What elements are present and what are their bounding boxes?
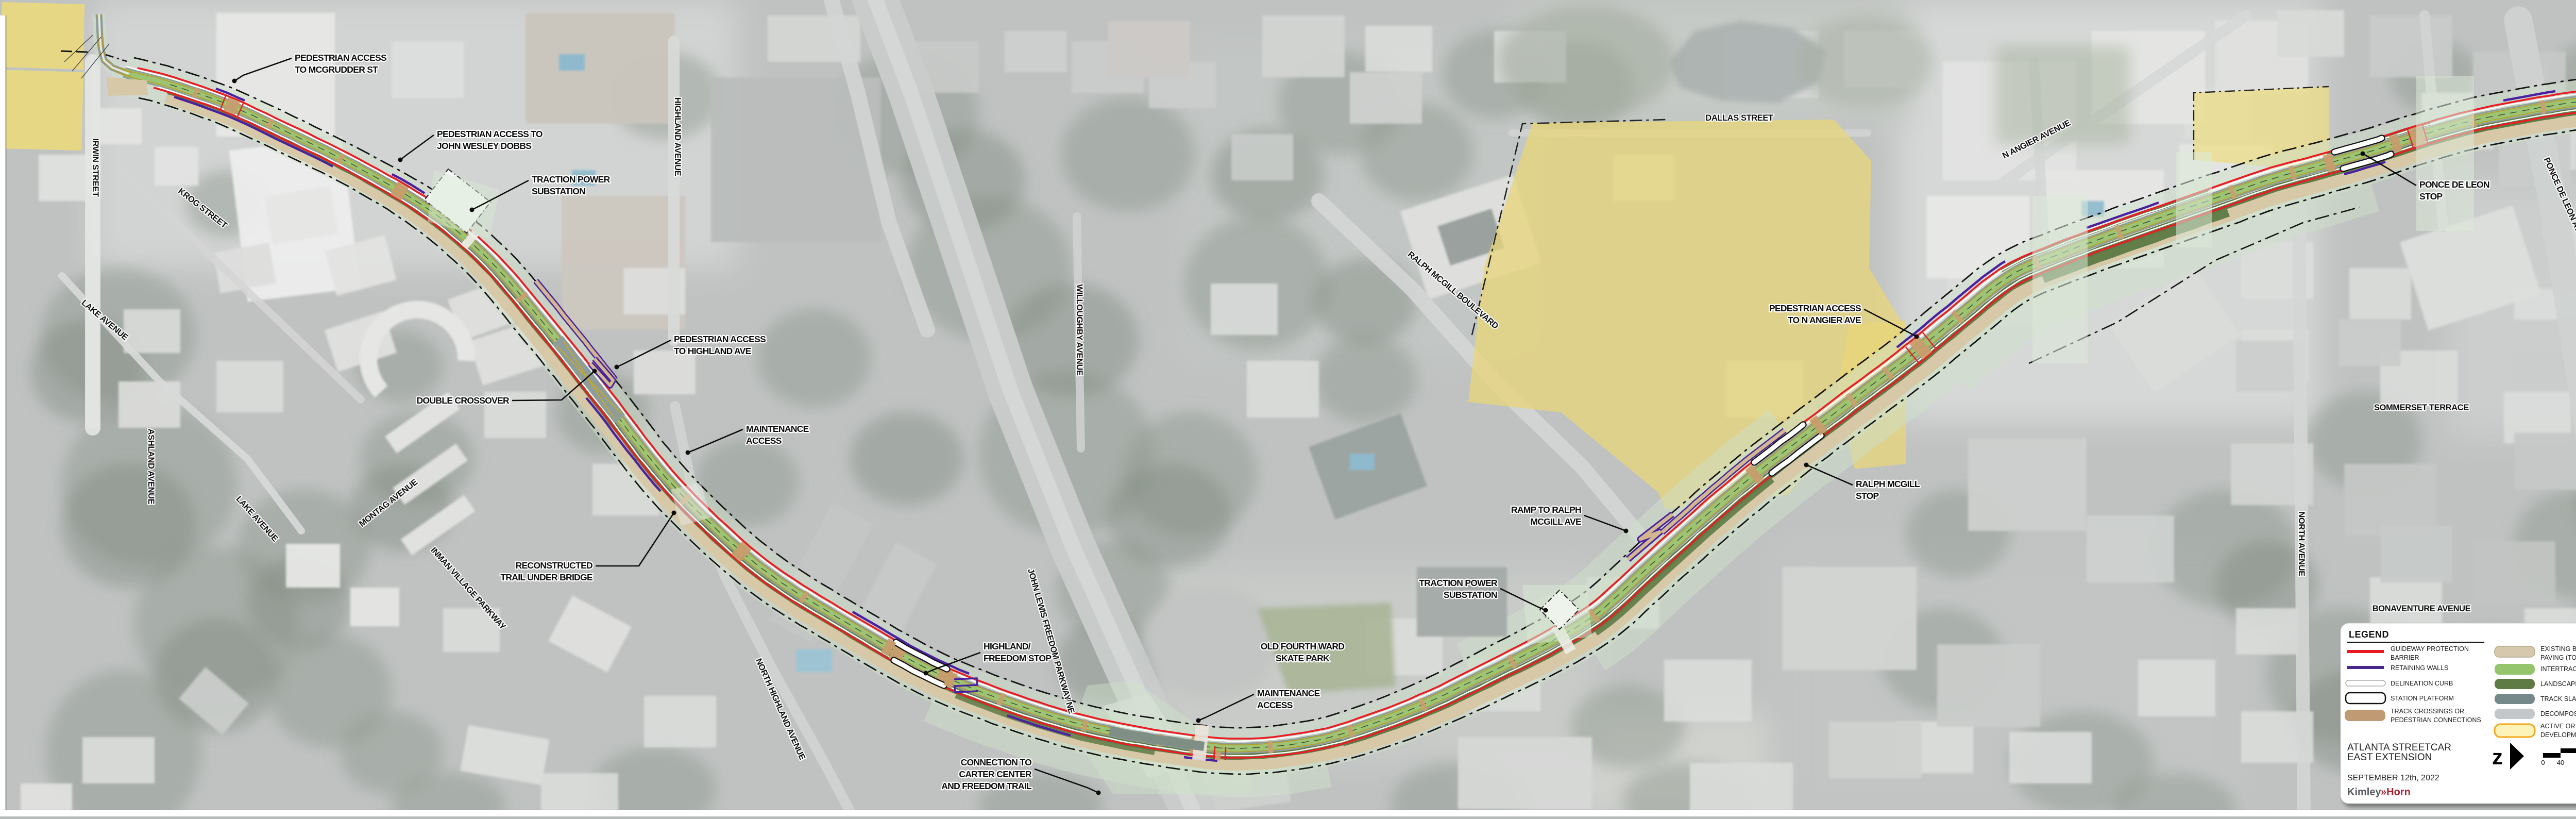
- svg-text:BONAVENTURE AVENUE: BONAVENTURE AVENUE: [2372, 604, 2471, 613]
- svg-text:AND FREEDOM TRAIL: AND FREEDOM TRAIL: [941, 781, 1032, 791]
- svg-text:TRACK CROSSINGS OR: TRACK CROSSINGS OR: [2391, 708, 2464, 715]
- svg-text:ACCESS: ACCESS: [746, 436, 782, 446]
- svg-text:EXISTING BELTLINE: EXISTING BELTLINE: [2540, 645, 2576, 653]
- svg-text:TRACTION POWER: TRACTION POWER: [1419, 578, 1498, 588]
- svg-text:BARRIER: BARRIER: [2391, 654, 2419, 661]
- svg-text:EAST EXTENSION: EAST EXTENSION: [2347, 752, 2432, 763]
- svg-text:0: 0: [2541, 759, 2545, 766]
- svg-text:STOP: STOP: [2419, 191, 2443, 202]
- svg-text:SEPTEMBER 12th, 2022: SEPTEMBER 12th, 2022: [2347, 774, 2439, 782]
- svg-text:CARTER CENTER: CARTER CENTER: [959, 769, 1032, 779]
- svg-text:JOHN WESLEY DOBBS: JOHN WESLEY DOBBS: [437, 141, 531, 151]
- svg-text:OLD FOURTH WARD: OLD FOURTH WARD: [1261, 641, 1345, 651]
- svg-text:PEDESTRIAN ACCESS TO: PEDESTRIAN ACCESS TO: [437, 129, 543, 139]
- svg-text:PEDESTRIAN ACCESS: PEDESTRIAN ACCESS: [295, 53, 386, 63]
- svg-text:ACTIVE OR PLANNED: ACTIVE OR PLANNED: [2540, 723, 2576, 730]
- svg-text:IRWIN STREET: IRWIN STREET: [91, 138, 100, 196]
- svg-text:CONNECTION TO: CONNECTION TO: [961, 757, 1031, 767]
- svg-text:SKATE PARK: SKATE PARK: [1276, 653, 1330, 663]
- svg-text:INTERTRACK GRASS: INTERTRACK GRASS: [2540, 665, 2576, 673]
- svg-text:TRAIL UNDER BRIDGE: TRAIL UNDER BRIDGE: [500, 572, 592, 582]
- svg-text:DECOMPOSED GRANITE: DECOMPOSED GRANITE: [2540, 710, 2576, 717]
- svg-text:DOUBLE CROSSOVER: DOUBLE CROSSOVER: [417, 395, 510, 406]
- svg-text:RECONSTRUCTED: RECONSTRUCTED: [516, 560, 592, 571]
- svg-text:DEVELOPMENT: DEVELOPMENT: [2540, 731, 2576, 739]
- svg-text:LEGEND: LEGEND: [2349, 629, 2389, 640]
- svg-text:DALLAS STREET: DALLAS STREET: [1705, 113, 1773, 123]
- svg-text:SOMMERSET TERRACE: SOMMERSET TERRACE: [2374, 403, 2469, 412]
- svg-text:TRACTION POWER: TRACTION POWER: [532, 174, 611, 185]
- svg-text:PEDESTRIAN ACCESS: PEDESTRIAN ACCESS: [674, 334, 766, 344]
- svg-text:FREEDOM STOP: FREEDOM STOP: [984, 653, 1052, 663]
- svg-text:PEDESTRIAN CONNECTIONS: PEDESTRIAN CONNECTIONS: [2391, 716, 2481, 724]
- svg-text:HIGHLAND AVENUE: HIGHLAND AVENUE: [673, 97, 682, 176]
- svg-text:GUIDEWAY PROTECTION: GUIDEWAY PROTECTION: [2391, 645, 2469, 653]
- svg-text:STATION PLATFORM: STATION PLATFORM: [2391, 695, 2454, 702]
- svg-text:PEDESTRIAN ACCESS: PEDESTRIAN ACCESS: [1769, 303, 1861, 313]
- svg-text:NORTH AVENUE: NORTH AVENUE: [2297, 511, 2306, 576]
- svg-text:ATLANTA STREETCAR: ATLANTA STREETCAR: [2347, 742, 2451, 753]
- svg-text:SUBSTATION: SUBSTATION: [1444, 590, 1497, 600]
- svg-text:RETAINING WALLS: RETAINING WALLS: [2391, 664, 2449, 672]
- svg-text:ASHLAND AVENUE: ASHLAND AVENUE: [146, 429, 156, 505]
- svg-text:Kimley: Kimley: [2347, 787, 2381, 798]
- svg-text:WILLOUGHBY AVENUE: WILLOUGHBY AVENUE: [1075, 284, 1084, 376]
- svg-text:LANDSCAPE AREA: LANDSCAPE AREA: [2540, 680, 2576, 688]
- svg-text:SUBSTATION: SUBSTATION: [532, 186, 585, 196]
- svg-text:TO MCGRUDDER ST: TO MCGRUDDER ST: [295, 64, 378, 75]
- svg-text:HIGHLAND/: HIGHLAND/: [984, 641, 1031, 651]
- svg-text:»Horn: »Horn: [2381, 787, 2411, 798]
- svg-text:TRACK SLAB: TRACK SLAB: [2540, 695, 2576, 703]
- svg-text:MAINTENANCE: MAINTENANCE: [746, 424, 809, 434]
- svg-text:TO HIGHLAND AVE: TO HIGHLAND AVE: [674, 346, 751, 356]
- svg-text:STOP: STOP: [1856, 491, 1879, 501]
- svg-text:RAMP TO RALPH: RAMP TO RALPH: [1511, 505, 1581, 515]
- svg-text:DELINEATION CURB: DELINEATION CURB: [2391, 680, 2453, 687]
- svg-text:RALPH MCGILL: RALPH MCGILL: [1856, 479, 1920, 489]
- svg-text:ACCESS: ACCESS: [1257, 700, 1293, 710]
- svg-text:z: z: [2492, 745, 2503, 769]
- svg-text:PONCE DE LEON: PONCE DE LEON: [2419, 179, 2489, 190]
- svg-text:MCGILL AVE: MCGILL AVE: [1530, 516, 1581, 527]
- svg-text:40: 40: [2557, 759, 2564, 766]
- svg-text:PAVING (TO REMAIN): PAVING (TO REMAIN): [2540, 654, 2576, 661]
- svg-text:MAINTENANCE: MAINTENANCE: [1257, 688, 1320, 698]
- svg-text:TO N ANGIER AVE: TO N ANGIER AVE: [1788, 315, 1861, 325]
